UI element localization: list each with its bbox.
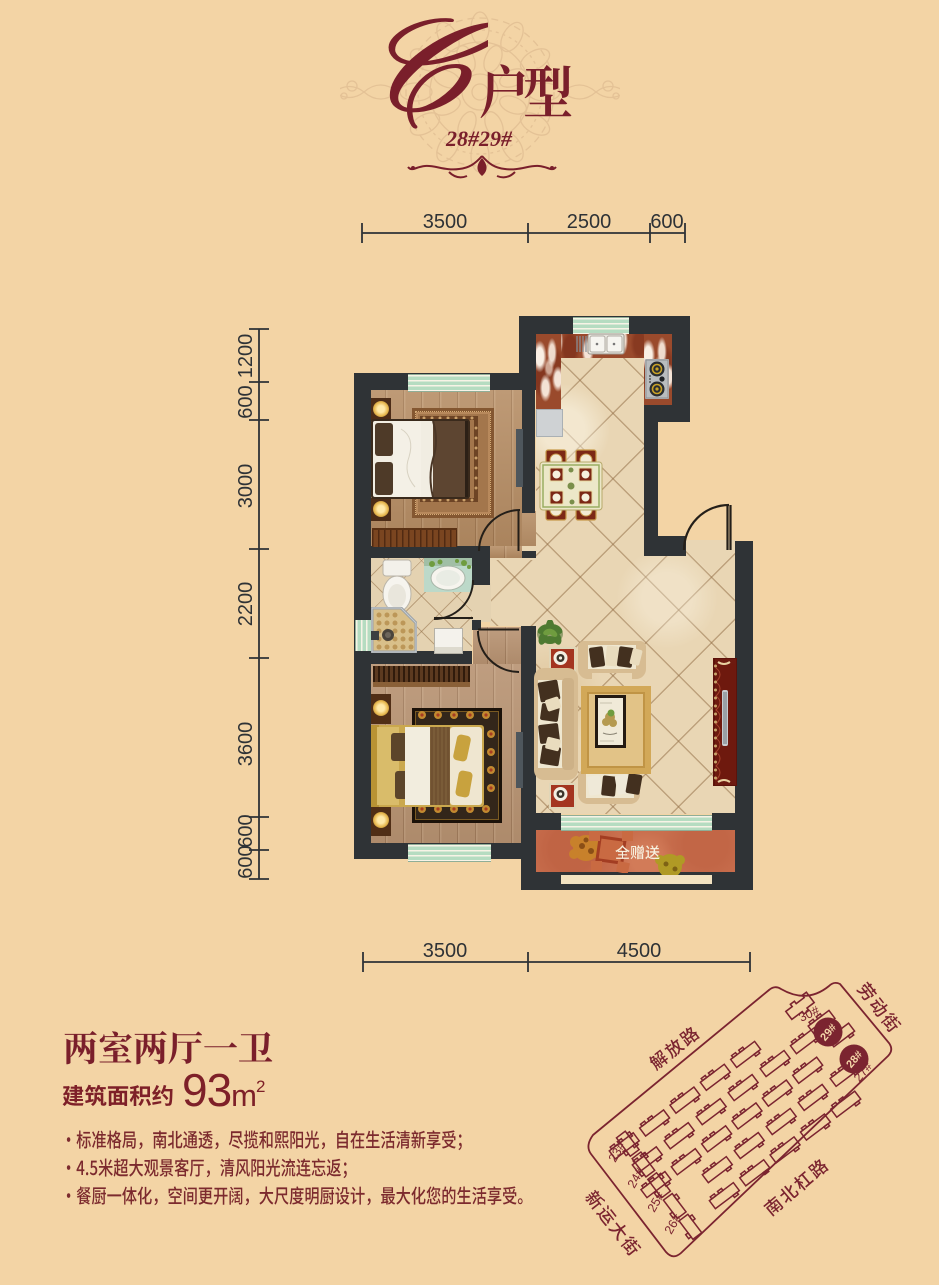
svg-text:23#: 23#: [606, 1139, 629, 1164]
